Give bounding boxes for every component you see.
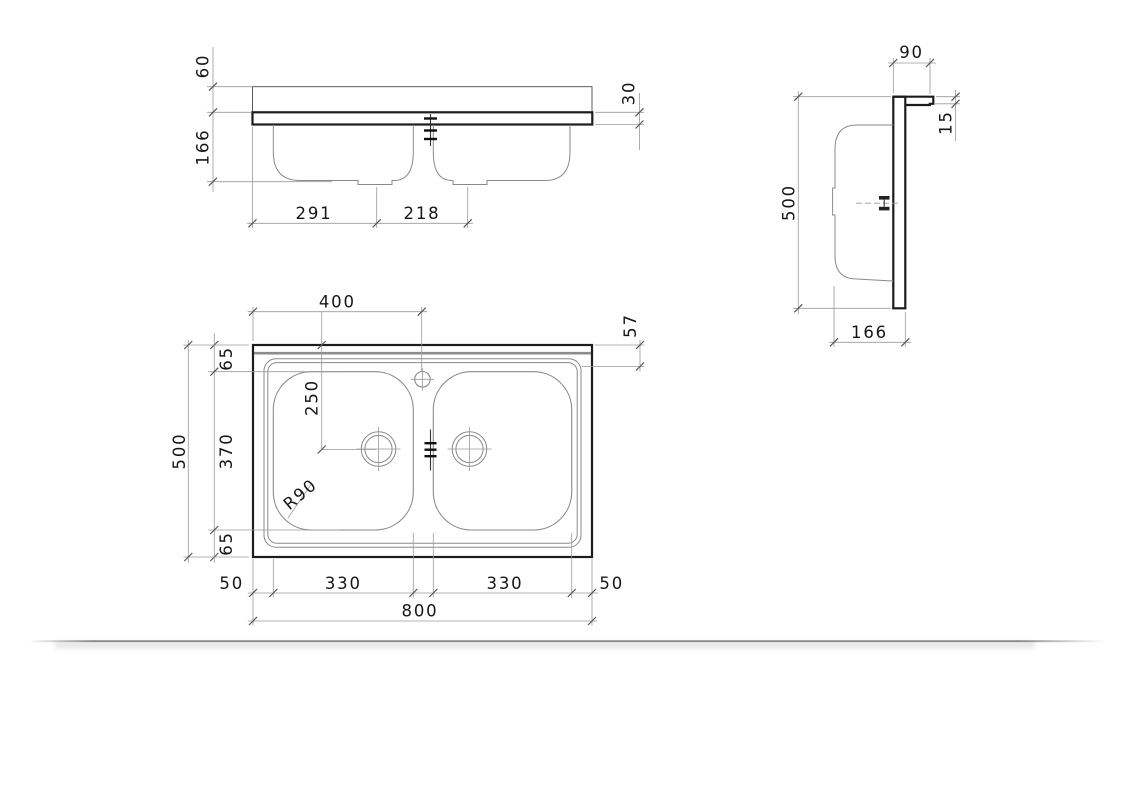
- dim-label-plan-57: 57: [621, 313, 640, 338]
- side-worktop: [893, 97, 905, 309]
- dim-label-plan-370: 370: [217, 432, 236, 469]
- dim-label-plan-800: 800: [402, 602, 439, 621]
- dim-label-plan-330-right: 330: [487, 574, 524, 593]
- side-view: 90 15 500 166: [780, 43, 961, 347]
- dim-label-front-30: 30: [620, 81, 639, 106]
- dim-label-plan-65-bottom: 65: [217, 531, 236, 556]
- dim-label-side-90: 90: [899, 43, 924, 62]
- front-bowl-left: [273, 125, 413, 185]
- plan-view: 400 250 57 65 370 65: [170, 293, 644, 626]
- dim-label-plan-330-left: 330: [325, 574, 362, 593]
- drawing-page: 60 166 30 291 218: [0, 0, 1140, 800]
- dim-label-front-291: 291: [296, 204, 333, 223]
- dim-label-side-166: 166: [851, 323, 888, 342]
- fixing-clip-icon: [424, 114, 437, 146]
- dim-label-plan-65-top: 65: [217, 346, 236, 371]
- front-worktop: [253, 112, 593, 124]
- dim-label-side-500: 500: [780, 184, 799, 221]
- fixing-clip-icon: [856, 196, 898, 210]
- dim-label-plan-400: 400: [319, 293, 356, 312]
- dim-label-front-166: 166: [194, 129, 213, 166]
- dim-label-front-60: 60: [194, 54, 213, 79]
- front-bowl-right: [433, 125, 570, 185]
- front-upstand: [253, 87, 593, 113]
- technical-drawing-canvas: 60 166 30 291 218: [0, 0, 1140, 800]
- dim-label-plan-500: 500: [170, 433, 189, 470]
- front-dimensions: 60 166 30 291 218: [194, 47, 645, 228]
- front-view: 60 166 30 291 218: [194, 47, 645, 228]
- dim-label-front-218: 218: [404, 204, 441, 223]
- floor-shadow: [28, 640, 1105, 650]
- dim-label-plan-50-left: 50: [219, 574, 244, 593]
- dim-label-plan-250: 250: [303, 379, 322, 416]
- dim-label-plan-50-right: 50: [599, 574, 624, 593]
- dim-label-side-15: 15: [937, 110, 956, 135]
- side-dimensions: 90 15 500 166: [780, 43, 961, 347]
